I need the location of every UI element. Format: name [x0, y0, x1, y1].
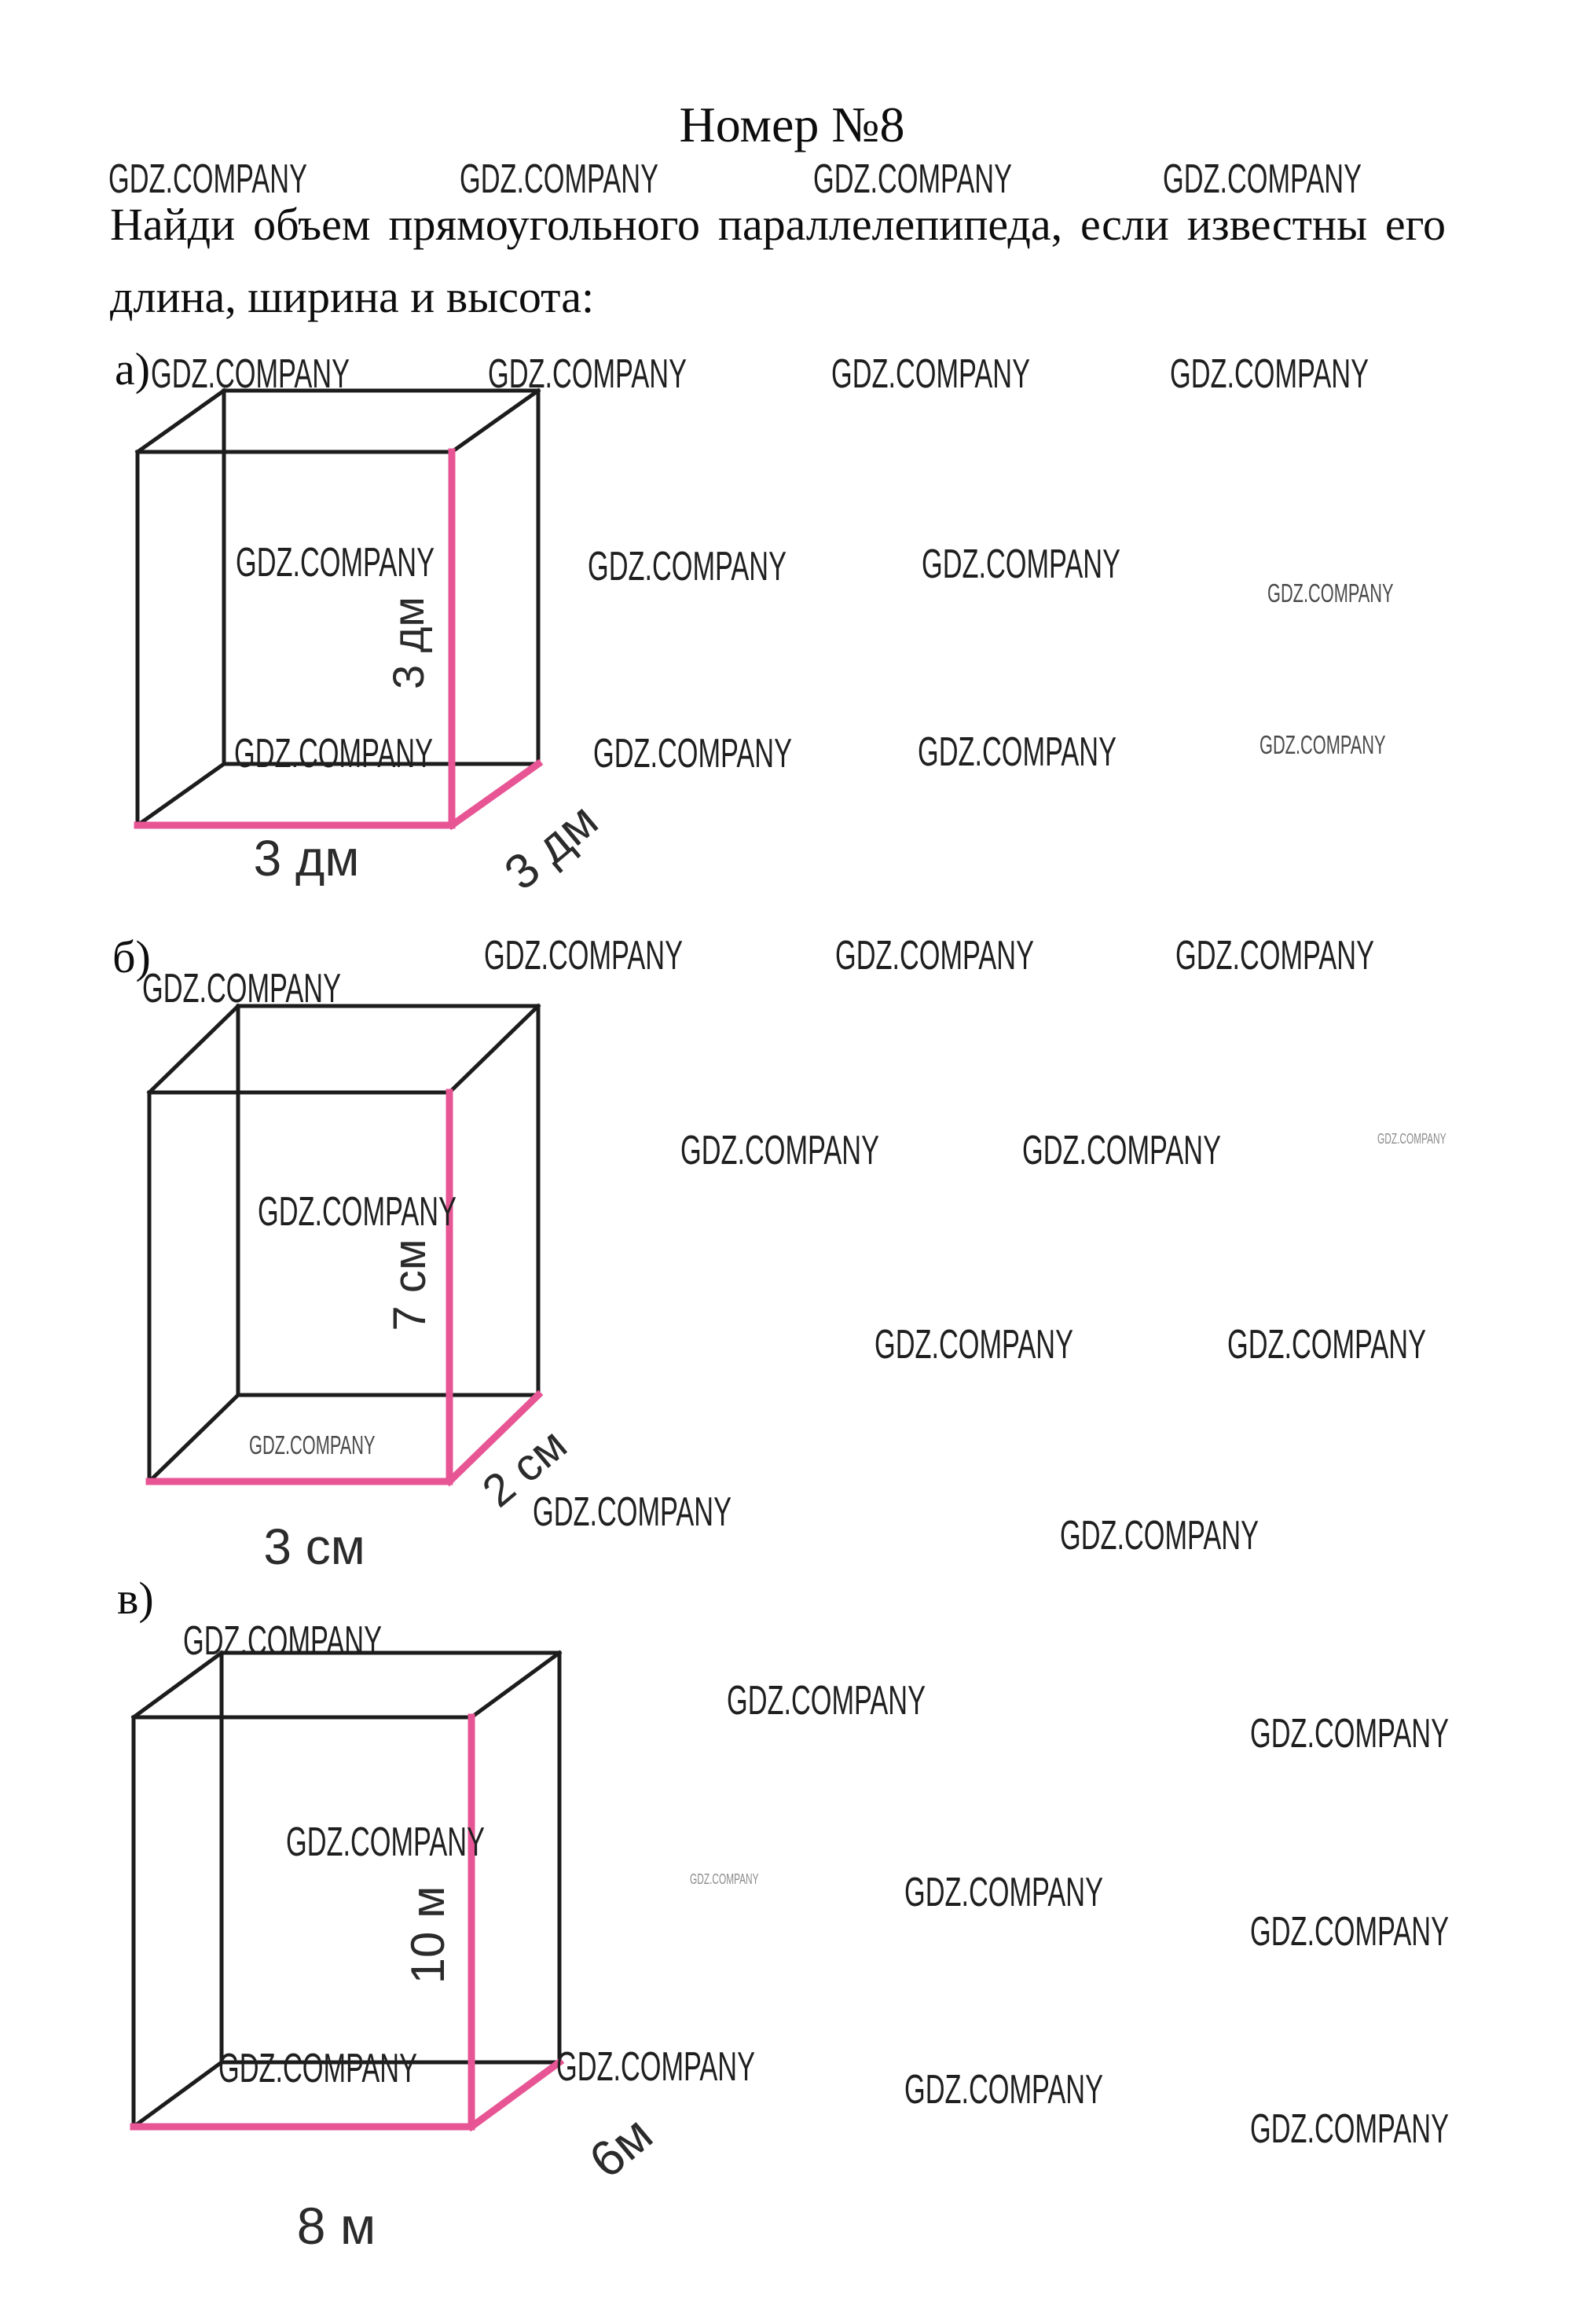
watermark: GDZ.COMPANY — [1259, 732, 1386, 758]
watermark: GDZ.COMPANY — [918, 732, 1116, 773]
cube-b-black-edges — [149, 1006, 538, 1481]
figure-a-height-label: 3 дм — [387, 597, 431, 689]
watermark: GDZ.COMPANY — [874, 1324, 1073, 1365]
watermark: GDZ.COMPANY — [922, 544, 1120, 585]
watermark: GDZ.COMPANY — [484, 935, 683, 976]
figure-a-length-label: 3 дм — [254, 833, 360, 883]
watermark: GDZ.COMPANY — [108, 159, 307, 200]
watermark: GDZ.COMPANY — [1175, 935, 1374, 976]
watermark: GDZ.COMPANY — [1163, 159, 1362, 200]
watermark: GDZ.COMPANY — [1250, 1911, 1449, 1952]
problem-text-line-2: длина, ширина и высота: — [110, 270, 594, 323]
watermark: GDZ.COMPANY — [831, 354, 1030, 395]
watermark: GDZ.COMPANY — [533, 1492, 731, 1533]
page-title: Номер №8 — [0, 96, 1584, 154]
watermark: GDZ.COMPANY — [556, 2047, 755, 2087]
watermark: GDZ.COMPANY — [1250, 2109, 1449, 2150]
figure-b-length-label: 3 см — [263, 1522, 365, 1572]
watermark: GDZ.COMPANY — [1170, 354, 1369, 395]
watermark: GDZ.COMPANY — [236, 542, 434, 583]
watermark: GDZ.COMPANY — [1250, 1713, 1449, 1754]
watermark: GDZ.COMPANY — [904, 1872, 1103, 1913]
watermark: GDZ.COMPANY — [1227, 1324, 1426, 1365]
watermark: GDZ.COMPANY — [1377, 1132, 1446, 1146]
watermark: GDZ.COMPANY — [593, 733, 792, 774]
figure-b-height-label: 7 см — [387, 1239, 433, 1331]
watermark: GDZ.COMPANY — [1022, 1130, 1221, 1171]
watermark: GDZ.COMPANY — [813, 159, 1012, 200]
problem-text-line-1: Найди объем прямоугольного параллелепипе… — [110, 198, 1446, 251]
watermark: GDZ.COMPANY — [904, 2069, 1103, 2110]
textbook-page: { "page": { "title": "Номер №8", "waterm… — [0, 0, 1584, 2324]
watermark: GDZ.COMPANY — [690, 1872, 759, 1886]
cube-a-drawing — [102, 346, 574, 896]
watermark: GDZ.COMPANY — [588, 546, 786, 587]
watermark: GDZ.COMPANY — [727, 1680, 926, 1721]
figure-v-length-label: 8 м — [297, 2200, 376, 2252]
watermark: GDZ.COMPANY — [835, 935, 1034, 976]
watermark: GDZ.COMPANY — [460, 159, 658, 200]
watermark: GDZ.COMPANY — [234, 733, 433, 774]
watermark: GDZ.COMPANY — [680, 1130, 879, 1171]
figure-v-height-label: 10 м — [405, 1886, 452, 1984]
watermark: GDZ.COMPANY — [286, 1822, 485, 1863]
watermark: GDZ.COMPANY — [249, 1432, 376, 1458]
watermark: GDZ.COMPANY — [1267, 580, 1394, 606]
watermark: GDZ.COMPANY — [218, 2048, 417, 2089]
watermark: GDZ.COMPANY — [258, 1191, 456, 1232]
watermark: GDZ.COMPANY — [1060, 1515, 1259, 1556]
